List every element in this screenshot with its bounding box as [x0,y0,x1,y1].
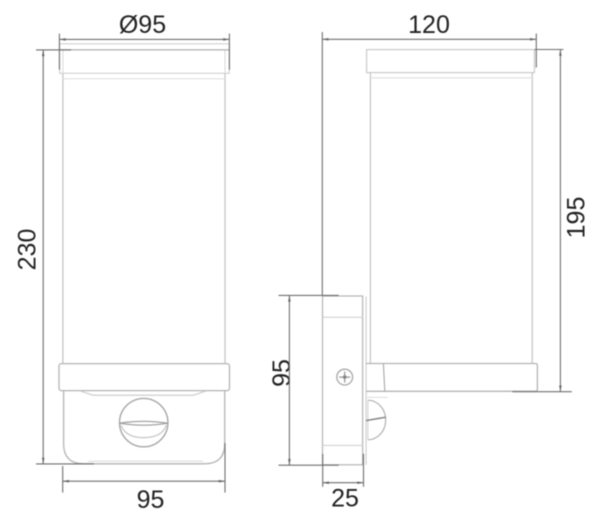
svg-text:120: 120 [408,11,450,39]
svg-text:230: 230 [14,229,42,271]
svg-text:195: 195 [563,197,591,239]
svg-text:95: 95 [137,486,165,514]
svg-text:25: 25 [331,485,359,513]
svg-text:95: 95 [268,359,296,387]
svg-text:Ø95: Ø95 [119,11,166,39]
